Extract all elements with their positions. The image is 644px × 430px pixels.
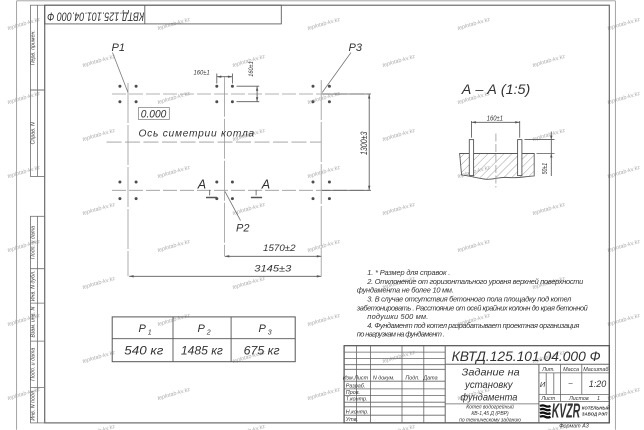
svg-text:675 кг: 675 кг <box>244 346 280 358</box>
svg-text:Масштаб: Масштаб <box>583 367 609 373</box>
svg-text:Р1: Р1 <box>112 42 125 54</box>
svg-text:4. Фундамент под котел разраба: 4. Фундамент под котел разрабатывает про… <box>367 321 579 330</box>
svg-text:Задание на: Задание на <box>462 367 520 379</box>
svg-text:Дата: Дата <box>422 375 437 381</box>
svg-text:Изм.Лист: Изм.Лист <box>343 375 369 381</box>
svg-text:160±1: 160±1 <box>487 115 503 122</box>
svg-text:забетонировать . Расстояние от: забетонировать . Расстояние от осей край… <box>356 303 588 312</box>
svg-text:А – А (1:5): А – А (1:5) <box>461 82 531 97</box>
svg-text:1:20: 1:20 <box>589 379 607 389</box>
svg-text:ЗАВОД РЭП: ЗАВОД РЭП <box>582 411 608 416</box>
svg-text:Масса: Масса <box>563 367 579 373</box>
svg-text:Лит.: Лит. <box>541 367 555 373</box>
svg-text:КВ-1,45 Д (РВР): КВ-1,45 Д (РВР) <box>471 411 509 417</box>
svg-text:установку: установку <box>464 379 513 391</box>
svg-text:1300±3: 1300±3 <box>359 132 369 156</box>
svg-text:Н.контр.: Н.контр. <box>346 409 369 415</box>
svg-text:подушки 500 мм.: подушки 500 мм. <box>367 312 428 321</box>
svg-text:160±1: 160±1 <box>248 61 255 77</box>
svg-text:Инв. N дубл.: Инв. N дубл. <box>31 271 37 302</box>
svg-text:3145±3: 3145±3 <box>254 264 291 274</box>
svg-text:1. * Размер для справок .: 1. * Размер для справок . <box>367 268 450 277</box>
svg-text:Т.контр.: Т.контр. <box>346 397 368 403</box>
svg-text:Утв.: Утв. <box>345 417 358 423</box>
svg-text:Подп. и дата: Подп. и дата <box>31 226 37 259</box>
svg-text:2. Отклонение от горизонтально: 2. Отклонение от горизонтального уровня … <box>366 277 583 286</box>
svg-text:1: 1 <box>597 396 600 402</box>
svg-text:0.000: 0.000 <box>141 109 167 121</box>
svg-text:N докум.: N докум. <box>373 375 395 381</box>
svg-text:KVZR: KVZR <box>552 401 581 423</box>
svg-text:Перв. примен.: Перв. примен. <box>31 30 37 65</box>
svg-text:И: И <box>540 380 546 389</box>
svg-text:Подп.: Подп. <box>405 375 419 381</box>
svg-text:Подп. и дата: Подп. и дата <box>31 348 37 381</box>
svg-text:50±1: 50±1 <box>542 163 549 175</box>
svg-text:Инв. N подл.: Инв. N подл. <box>31 390 37 421</box>
svg-text:по нагрузкам на фундамент .: по нагрузкам на фундамент . <box>357 330 445 339</box>
svg-text:КВТД.125.101.04.000 Ф: КВТД.125.101.04.000 Ф <box>47 10 144 24</box>
svg-text:3. В случае отсутствия бетонно: 3. В случае отсутствия бетонного пола пл… <box>367 295 572 304</box>
svg-text:КВТД.125.101.04.000 Ф: КВТД.125.101.04.000 Ф <box>452 348 601 364</box>
svg-text:КОТЕЛЬНЫЙ: КОТЕЛЬНЫЙ <box>582 406 611 411</box>
svg-text:по техническому заданию: по техническому заданию <box>459 418 521 424</box>
svg-text:Разраб.: Разраб. <box>346 383 366 389</box>
svg-text:Котел водогрейный: Котел водогрейный <box>466 403 514 410</box>
svg-text:Р3: Р3 <box>349 42 363 54</box>
svg-text:1485 кг: 1485 кг <box>181 346 223 358</box>
svg-text:Р2: Р2 <box>236 223 249 235</box>
svg-text:А: А <box>197 178 206 192</box>
svg-text:Пров.: Пров. <box>346 390 360 396</box>
svg-text:Формат А3: Формат А3 <box>559 423 589 429</box>
svg-text:1570±2: 1570±2 <box>263 243 296 253</box>
svg-text:фундамента: фундамента <box>460 392 517 404</box>
svg-text:А: А <box>261 178 270 192</box>
svg-text:160±1: 160±1 <box>193 70 209 77</box>
svg-text:Справ. N: Справ. N <box>31 122 37 144</box>
svg-text:540 кг: 540 кг <box>124 346 163 358</box>
svg-text:фундамента не более 10 мм.: фундамента не более 10 мм. <box>357 286 454 295</box>
svg-text:–: – <box>568 379 574 388</box>
svg-text:Взам. инв. N: Взам. инв. N <box>31 307 37 338</box>
svg-text:Ось симетрии котла: Ось симетрии котла <box>139 129 255 140</box>
